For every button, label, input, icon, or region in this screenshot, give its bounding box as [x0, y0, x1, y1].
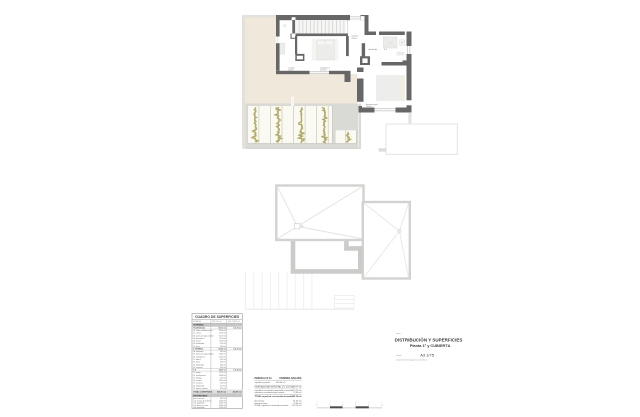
svg-text:03. dorm. principal-vestidor: 03. dorm. principal-vestidor — [193, 334, 214, 337]
svg-text:01. salon-comedor-cocina: 01. salon-comedor-cocina — [193, 329, 212, 332]
svg-text:12.85 m: 12.85 m — [320, 69, 327, 71]
svg-text:escala: escala — [396, 355, 402, 357]
svg-text:Planta 1ª y CUBIERTA: Planta 1ª y CUBIERTA — [410, 343, 451, 348]
svg-text:106.32 m2: 106.32 m2 — [233, 348, 241, 350]
svg-text:1: 1 — [330, 402, 331, 404]
svg-text:VIVIENDA AISLADA: VIVIENDA AISLADA — [279, 377, 302, 380]
svg-text:b. 2: b. 2 — [384, 49, 387, 51]
svg-text:15. garaje: 15. garaje — [193, 371, 201, 374]
svg-text:4: 4 — [368, 402, 369, 404]
svg-text:19. escalera: 19. escalera — [193, 382, 202, 385]
svg-text:13. distribuidor: 13. distribuidor — [193, 363, 205, 366]
svg-text:EDIFICABILIDAD MUNICIPAL (0.2: EDIFICABILIDAD MUNICIPAL (0.2 m2/m2) — [255, 386, 294, 389]
svg-text:06. distribuidor: 06. distribuidor — [193, 342, 205, 345]
svg-text:236.20 m2: 236.20 m2 — [217, 392, 226, 394]
svg-text:levantamiento topografico y me: levantamiento topografico y medicion — [396, 358, 427, 361]
svg-text:125.18 m2: 125.18 m2 — [233, 327, 241, 329]
svg-text:2: 2 — [342, 402, 343, 404]
svg-text:170.70 m2: 170.70 m2 — [292, 405, 302, 407]
svg-text:131.48 m2: 131.48 m2 — [233, 369, 241, 372]
svg-text:A3 1/75: A3 1/75 — [420, 353, 435, 358]
svg-text:24.65 m2: 24.65 m2 — [219, 369, 226, 372]
svg-text:P. PRIMERA: P. PRIMERA — [193, 347, 203, 350]
svg-text:18. trastero: 18. trastero — [193, 379, 202, 382]
svg-text:CUADRO DE SUPERFICIES: CUADRO DE SUPERFICIES — [195, 315, 240, 319]
svg-text:4.35 m: 4.35 m — [352, 38, 358, 40]
svg-text:21. porche cubierto: 21. porche cubierto — [193, 387, 208, 390]
svg-text:20. distribuidor: 20. distribuidor — [193, 384, 205, 387]
svg-text:3: 3 — [355, 402, 356, 404]
svg-text:362.98 m2: 362.98 m2 — [232, 392, 241, 394]
svg-text:4.10 m: 4.10 m — [288, 69, 294, 71]
svg-text:superficie parcela: superficie parcela — [255, 382, 272, 384]
svg-text:5: 5 — [381, 402, 382, 404]
svg-text:188.77 m2: 188.77 m2 — [292, 387, 302, 389]
svg-text:SUP. CONST. m2: SUP. CONST. m2 — [228, 321, 240, 323]
svg-text:08. dormitorio: 08. dormitorio — [193, 350, 203, 353]
svg-text:72.08 m2: 72.08 m2 — [293, 392, 302, 394]
svg-text:PARCELA N 14: PARCELA N 14 — [255, 377, 273, 380]
svg-text:242.78 m2: 242.78 m2 — [292, 395, 303, 398]
svg-text:TOTAL superficie construida s/: TOTAL superficie construida s/rasante — [255, 404, 290, 407]
svg-text:10. dormitorio 2: 10. dormitorio 2 — [193, 355, 205, 358]
svg-text:16. instalaciones: 16. instalaciones — [193, 374, 206, 377]
svg-text:PLANTA BAJA: PLANTA BAJA — [193, 326, 205, 329]
svg-text:13.60 m2: 13.60 m2 — [219, 407, 226, 409]
svg-text:DISTRIBUCIÓN Y SUPERFICIES: DISTRIBUCIÓN Y SUPERFICIES — [395, 335, 463, 342]
svg-text:plano: plano — [396, 333, 401, 335]
svg-text:0: 0 — [316, 402, 317, 404]
svg-text:04. dormitorio 1: 04. dormitorio 1 — [193, 337, 205, 340]
svg-text:TOTAL superficie construida vi: TOTAL superficie construida vivienda — [255, 395, 293, 398]
svg-text:943.00 m2: 943.00 m2 — [276, 382, 286, 384]
svg-text:cub. pergolada: cub. pergolada — [193, 406, 204, 409]
svg-text:distribuidor: distribuidor — [369, 48, 378, 51]
svg-text:EXTERIORES: EXTERIORES — [193, 395, 208, 397]
svg-text:SUP. UTIL m2: SUP. UTIL m2 — [212, 321, 222, 323]
svg-text:09. dorm. principal-vestidor: 09. dorm. principal-vestidor — [193, 353, 214, 356]
svg-text:TOTAL CONSTRUIDA: TOTAL CONSTRUIDA — [193, 391, 213, 394]
svg-text:14.60 m: 14.60 m — [366, 106, 373, 108]
svg-text:superficie construida bajo ras: superficie construida bajo rasante — [255, 391, 286, 394]
